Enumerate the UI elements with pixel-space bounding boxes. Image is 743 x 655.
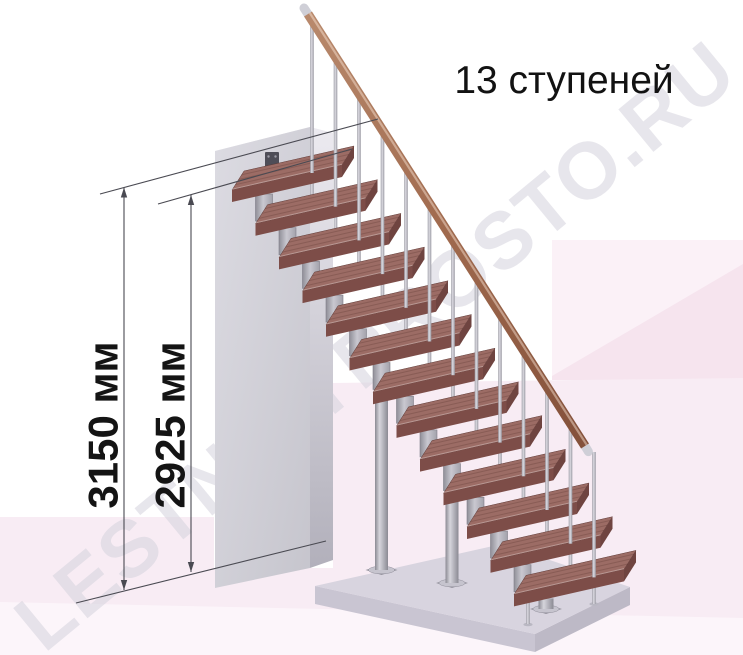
baluster bbox=[334, 59, 338, 207]
dimension-label-inner: 2925 мм bbox=[147, 341, 194, 508]
baluster bbox=[498, 316, 502, 443]
diagram-canvas: LESTNICYPROSTO.RU 3150 мм 2925 мм 13 сту… bbox=[0, 0, 743, 655]
baluster bbox=[569, 426, 573, 544]
baluster bbox=[451, 242, 455, 375]
baluster bbox=[522, 352, 526, 476]
page-title: 13 ступеней bbox=[454, 59, 673, 102]
baluster bbox=[357, 95, 361, 240]
baluster bbox=[428, 205, 432, 341]
dimension-label-outer: 3150 мм bbox=[80, 341, 127, 508]
baluster bbox=[475, 279, 479, 409]
plate-bolt bbox=[274, 155, 276, 157]
baluster bbox=[545, 389, 549, 510]
front-leg bbox=[526, 602, 530, 624]
baluster bbox=[310, 22, 314, 173]
baluster bbox=[404, 169, 408, 308]
support-column bbox=[375, 387, 388, 571]
baluster bbox=[381, 132, 385, 274]
plate-bolt bbox=[267, 155, 269, 157]
baluster bbox=[592, 452, 596, 577]
staircase-dimension-diagram: LESTNICYPROSTO.RU 3150 мм 2925 мм 13 сту… bbox=[0, 0, 743, 655]
